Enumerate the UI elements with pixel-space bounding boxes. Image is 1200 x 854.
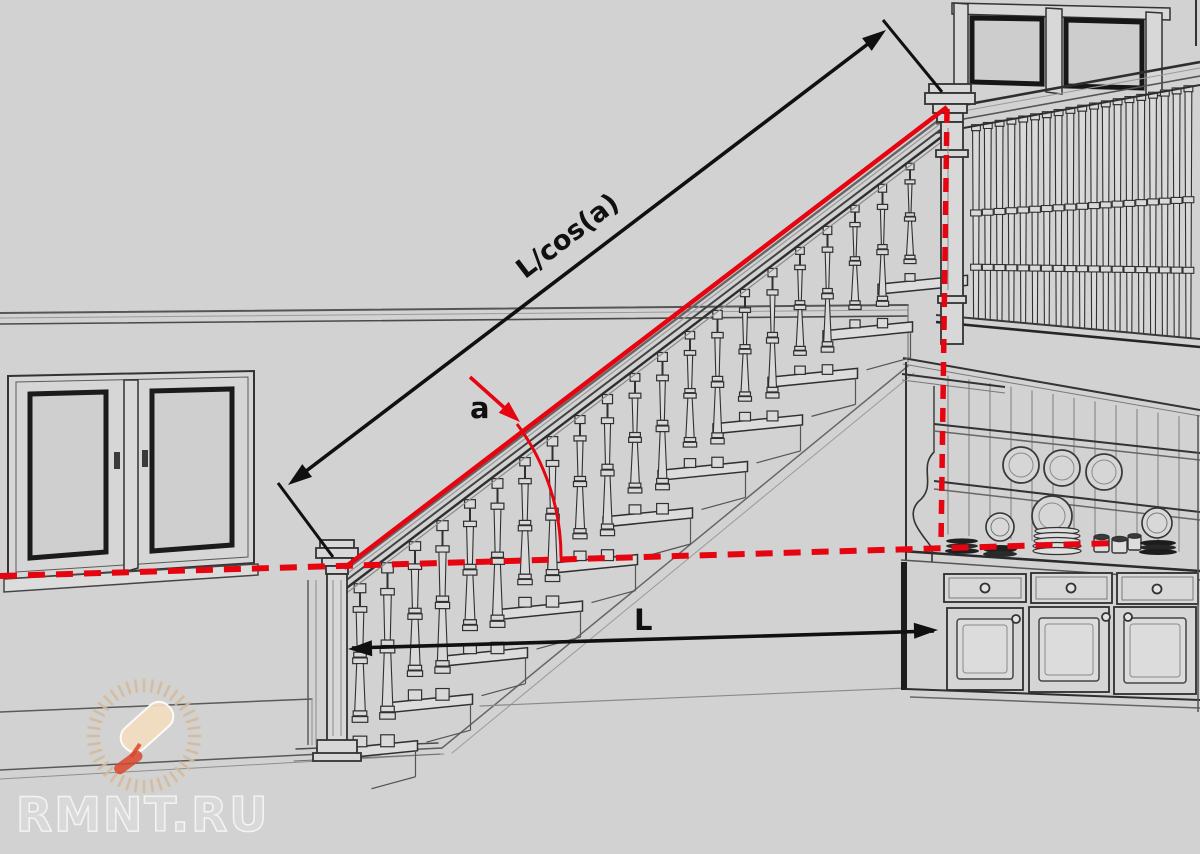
- upper-window: [952, 0, 1196, 96]
- watermark-text: RMNT.RU: [16, 788, 269, 843]
- paint-roller-icon: [112, 697, 179, 777]
- window-handle-icon: [114, 452, 120, 469]
- landing-balusters: [971, 86, 1194, 338]
- left-wall-window: [4, 371, 258, 592]
- diagram-canvas: L/cos(a) a L RMNT.RU: [0, 0, 1200, 854]
- stair-length-diagram: L/cos(a) a L RMNT.RU: [0, 0, 1200, 854]
- window-pane-right: [1066, 20, 1142, 88]
- angle-label: a: [470, 391, 490, 425]
- window-pane-left: [972, 18, 1042, 84]
- watermark: RMNT.RU: [16, 680, 269, 843]
- door-knob: [1102, 613, 1110, 621]
- stair-balusters: [352, 163, 916, 746]
- door-knob: [1012, 615, 1020, 623]
- drawer-knob: [981, 584, 990, 593]
- drawer-knob: [1153, 585, 1162, 594]
- dresser-doors: [947, 607, 1196, 694]
- staircase: [308, 84, 975, 789]
- dresser: [901, 358, 1200, 712]
- run-dimension-label: L: [634, 603, 652, 637]
- door-knob: [1124, 613, 1132, 621]
- window-handle-icon: [142, 450, 148, 467]
- dresser-drawers: [944, 573, 1198, 604]
- window-pane-right: [152, 389, 232, 551]
- window-pane-left: [30, 392, 106, 558]
- drawer-knob: [1067, 584, 1076, 593]
- newel-post-top: [925, 84, 975, 344]
